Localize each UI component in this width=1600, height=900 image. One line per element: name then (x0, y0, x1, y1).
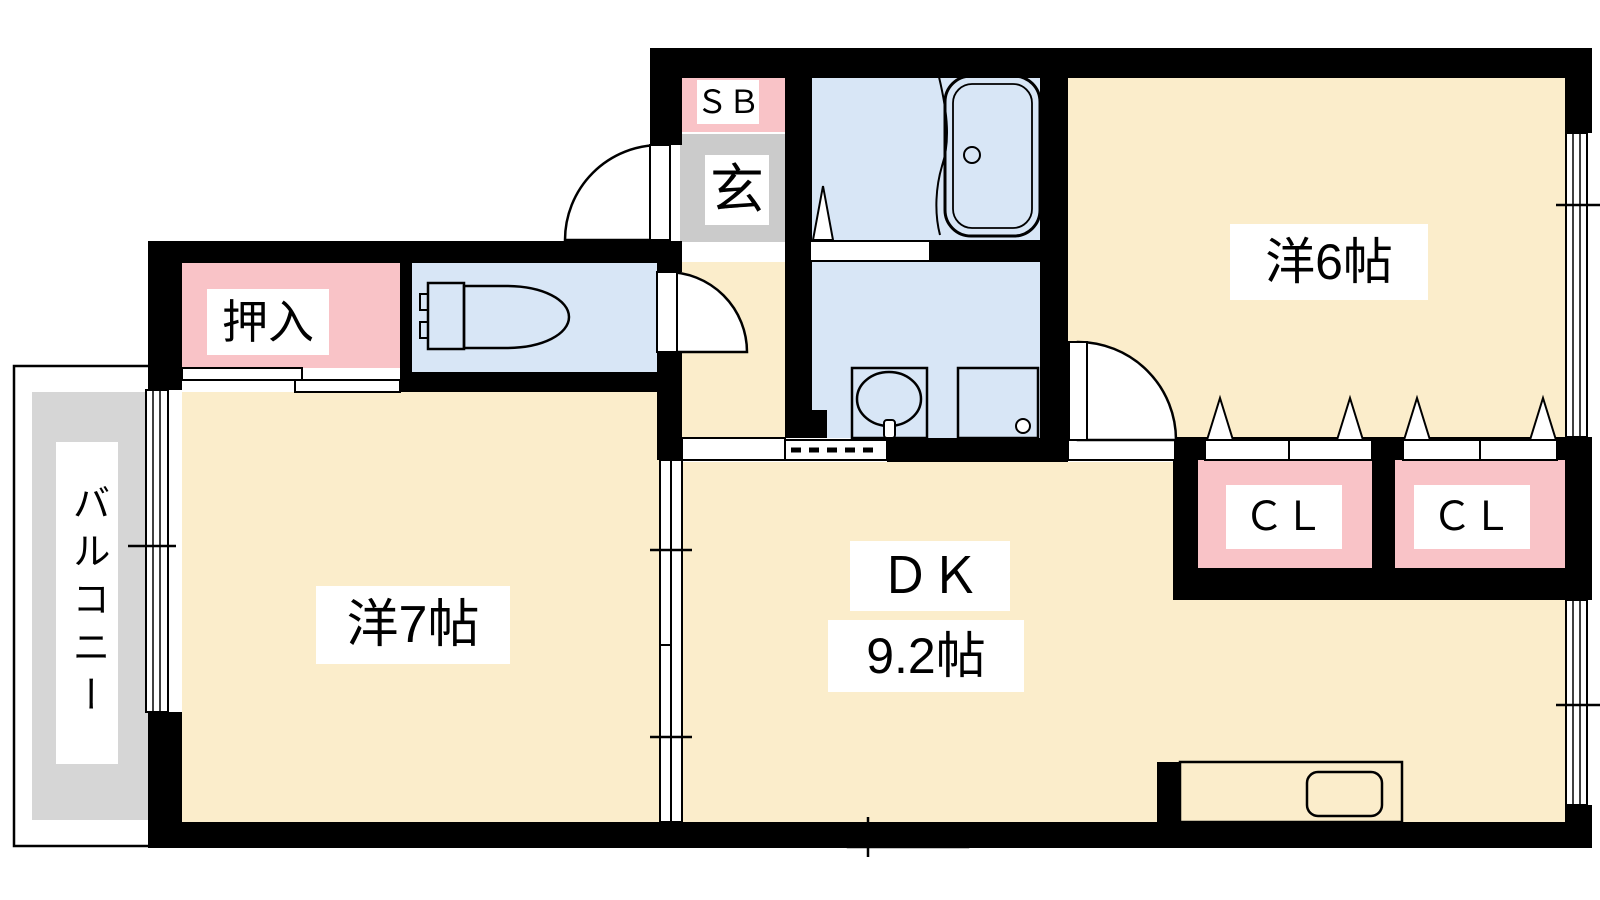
wall-toilet-hall-bottom (657, 352, 682, 460)
label-dk: ＤＫ (850, 541, 1010, 611)
floor-plan-drawing (0, 0, 1600, 900)
washroom-sliding-door (785, 440, 887, 460)
hall-dk-opening (682, 438, 785, 460)
label-closet-1: ＣＬ (1226, 485, 1342, 549)
bathroom-door-opening (810, 241, 930, 261)
label-balcony: バルコニー (56, 442, 118, 764)
label-closet-2: ＣＬ (1414, 485, 1530, 549)
wall-washroom-bottom (887, 438, 1068, 462)
oshiire-sliding-door (182, 368, 400, 392)
wall-bath-washroom (930, 240, 1040, 262)
floor-plan: ＳＢ 玄 押入 バルコニー 洋6帖 洋7帖 ＤＫ 9.2帖 ＣＬ ＣＬ (0, 0, 1600, 900)
toilet-floor (412, 263, 657, 372)
wall-left-section-top (148, 241, 682, 263)
wall-entrance-right (785, 48, 812, 438)
label-oshiire: 押入 (207, 289, 329, 355)
label-dk-size: 9.2帖 (828, 620, 1024, 692)
wall-counter-stub (1157, 762, 1180, 822)
label-room6: 洋6帖 (1230, 224, 1428, 300)
wall-washroom-stub (812, 410, 827, 438)
wall-oshiire-toilet (400, 241, 412, 392)
bathroom-floor (812, 78, 1040, 240)
wall-bath-east (1040, 48, 1068, 462)
label-room7: 洋7帖 (316, 586, 510, 664)
wall-toilet-bottom (400, 372, 682, 392)
wall-entrance-left (650, 48, 682, 145)
entrance-door (565, 145, 670, 240)
wall-toilet-hall-top (657, 262, 682, 272)
label-entrance: 玄 (705, 155, 769, 225)
label-shoe-box: ＳＢ (697, 80, 759, 124)
